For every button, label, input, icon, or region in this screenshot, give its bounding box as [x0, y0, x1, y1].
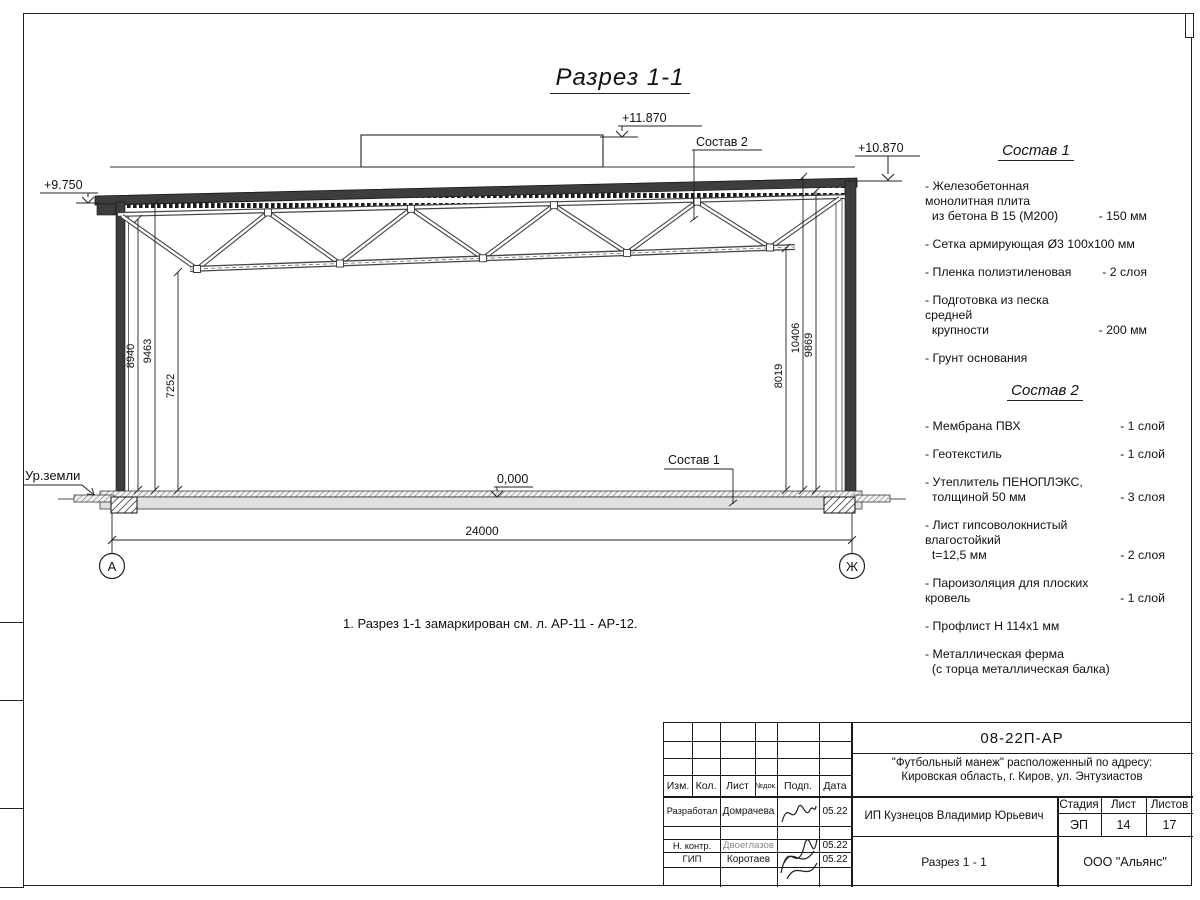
ground-strip-left	[74, 495, 114, 502]
dim-7252: 7252	[165, 374, 177, 398]
stamp-header-podp: Подп.	[777, 775, 819, 796]
drawing-note: 1. Разрез 1-1 замаркирован см. л. АР-11 …	[343, 616, 638, 631]
list-item: - Подготовка из песка средней крупности-…	[925, 293, 1147, 338]
stamp-sheet-label: Лист	[1101, 796, 1146, 813]
eave-block	[97, 204, 116, 215]
list-item: - Лист гипсоволокнистый влагостойкий t=1…	[925, 518, 1165, 563]
axis-markers: А Ж	[100, 554, 865, 579]
stamp-header-kol: Кол.	[692, 775, 720, 796]
stamp-role-ncontrol: Н. контр.	[664, 839, 720, 852]
stamp-date-ncontrol: 05.22	[819, 839, 851, 852]
stamp-header-list: Лист	[720, 775, 755, 796]
stamp-stage-value: ЭП	[1057, 813, 1101, 836]
stamp-sheet-value: 14	[1101, 813, 1146, 836]
dim-9869: 9869	[803, 333, 815, 357]
signature-gip	[777, 829, 819, 887]
axis-letter-right: Ж	[846, 559, 858, 574]
stamp-drawing-title: Разрез 1 - 1	[851, 836, 1057, 887]
stamp-project-line2: Кировская область, г. Киров, ул. Энтузиа…	[851, 770, 1193, 784]
list-item: - Сетка армирующая Ø3 100х100 мм	[925, 237, 1147, 252]
title-block: Изм. Кол. Лист №док. Подп. Дата Разработ…	[663, 722, 1192, 886]
left-wall	[116, 202, 125, 494]
composition-1-title: Состав 1	[925, 143, 1147, 158]
stamp-date-developer: 05.22	[819, 796, 851, 826]
stamp-name-ncontrol: Двоеглазов	[720, 839, 777, 852]
stamp-header-izm: Изм.	[664, 775, 692, 796]
elevation-box-top: +11.870	[622, 111, 667, 125]
stamp-header-ndok: №док.	[755, 775, 777, 796]
dim-10406: 10406	[790, 323, 802, 354]
foundation-right	[824, 497, 855, 513]
stamp-name-gip: Коротаев	[720, 852, 777, 867]
stamp-date-gip: 05.22	[819, 852, 851, 867]
stamp-stage-label: Стадия	[1057, 796, 1101, 813]
list-item: - Железобетонная монолитная плита из бет…	[925, 179, 1147, 224]
stamp-role-developer: Разработал	[664, 796, 720, 826]
leader-roof-composition: Состав 2	[696, 135, 748, 149]
roof-assembly	[95, 178, 857, 215]
vertical-dimensions	[134, 173, 820, 494]
list-item: - Мембрана ПВХ- 1 слой	[925, 419, 1165, 434]
elevation-eave-left: +9.750	[44, 178, 83, 192]
page-title: Разрез 1-1	[490, 64, 750, 92]
list-item: - Пароизоляция для плоских кровель- 1 сл…	[925, 576, 1165, 606]
dim-8940: 8940	[125, 344, 137, 368]
composition-2-title: Состав 2	[925, 383, 1165, 398]
right-wall	[845, 181, 856, 494]
drawing-sheet: 8940 9463 7252 8019 10406 9869 24000 А Ж	[0, 0, 1200, 900]
vertical-dimension-labels: 8940 9463 7252 8019 10406 9869	[125, 323, 815, 399]
stamp-doc-number: 08-22П-АР	[851, 723, 1193, 753]
stamp-sheets-label: Листов	[1146, 796, 1193, 813]
leader-floor-composition: Состав 1	[668, 453, 720, 467]
ground-level-label: Ур.земли	[25, 468, 80, 483]
stamp-name-developer: Домрачева	[720, 796, 777, 826]
page-title-text: Разрез 1-1	[550, 64, 691, 94]
stamp-project: "Футбольный манеж" расположенный по адре…	[851, 756, 1193, 784]
list-item: - Геотекстиль- 1 слой	[925, 447, 1165, 462]
stamp-sheets-value: 17	[1146, 813, 1193, 836]
ground-strip-right	[854, 495, 890, 502]
list-item: - Утеплитель ПЕНОПЛЭКС, толщиной 50 мм- …	[925, 475, 1165, 505]
span-dimension: 24000	[108, 513, 856, 554]
stamp-client: ИП Кузнецов Владимир Юрьевич	[851, 796, 1057, 836]
composition-list-1: Состав 1 - Железобетонная монолитная пли…	[925, 143, 1147, 379]
walls	[116, 181, 856, 494]
list-item: - Пленка полиэтиленовая- 2 слоя	[925, 265, 1147, 280]
signature-developer	[777, 796, 819, 830]
rooftop-structure	[361, 135, 603, 167]
floor-slab	[58, 491, 906, 513]
list-item: - Металлическая ферма (с торца металличе…	[925, 647, 1165, 677]
stamp-project-line1: "Футбольный манеж" расположенный по адре…	[851, 756, 1193, 770]
dim-8019: 8019	[773, 364, 785, 388]
dim-9463: 9463	[142, 339, 154, 363]
list-item: - Грунт основания	[925, 351, 1147, 366]
elevation-roof-right: +10.870	[858, 141, 904, 155]
list-item: - Профлист Н 114х1 мм	[925, 619, 1165, 634]
stamp-role-gip: ГИП	[664, 852, 720, 867]
axis-letter-left: А	[108, 559, 117, 574]
dim-span: 24000	[465, 524, 499, 538]
composition-list-2: Состав 2 - Мембрана ПВХ- 1 слой - Геотек…	[925, 383, 1165, 690]
stamp-company: ООО "Альянс"	[1057, 836, 1193, 887]
stamp-header-data: Дата	[819, 775, 851, 796]
foundation-left	[111, 497, 137, 513]
elevation-floor: 0,000	[497, 472, 528, 486]
